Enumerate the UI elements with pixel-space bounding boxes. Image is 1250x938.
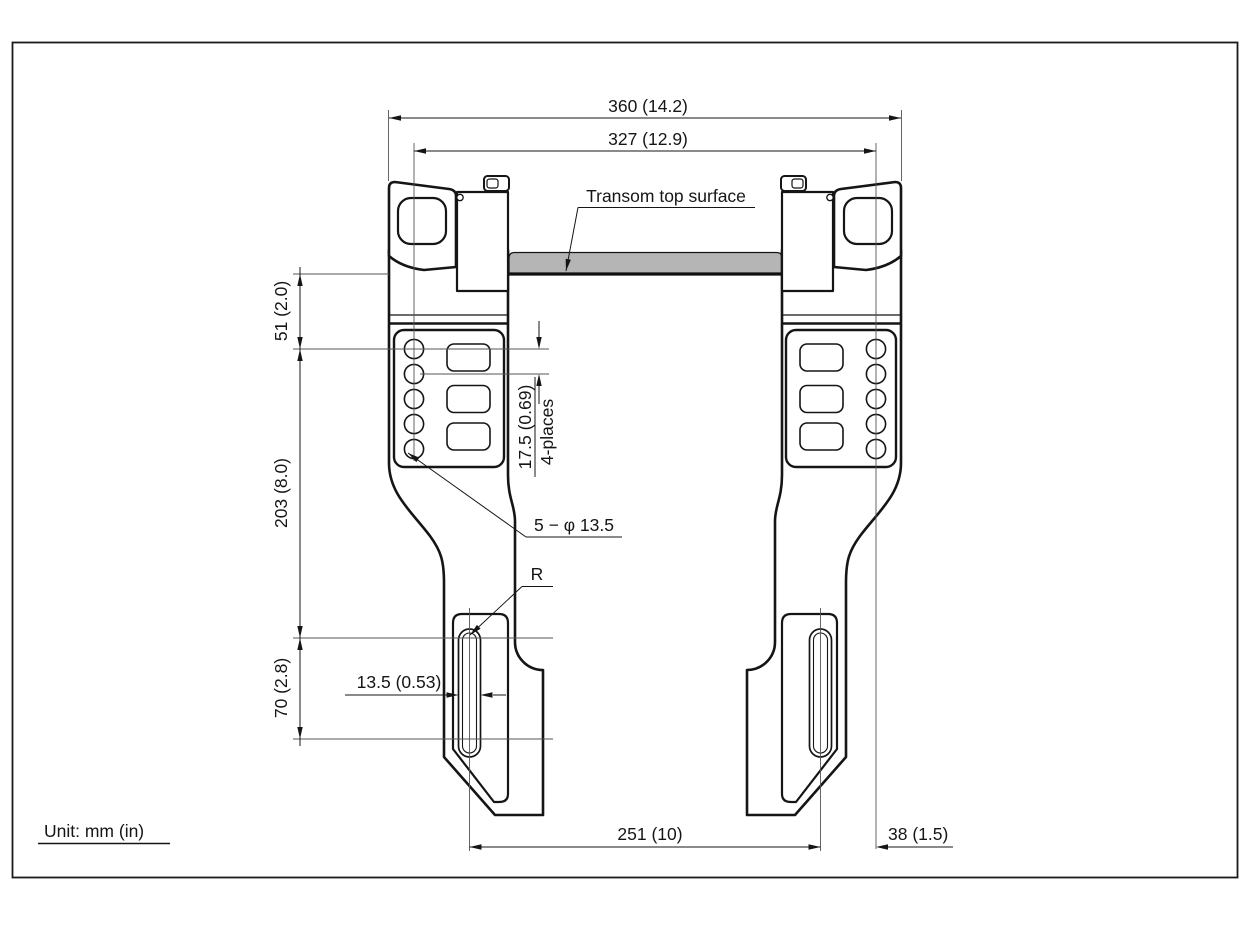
hole-callout: 5 − φ 13.5 [534, 515, 614, 535]
dim-transom-to-first-hole: 51 (2.0) [271, 281, 291, 341]
transom-bracket-technical-drawing: 360 (14.2) 327 (12.9) Transom top surfac… [0, 0, 1250, 938]
radius-callout: R [531, 564, 544, 584]
dim-foot-slot-span: 251 (10) [617, 824, 682, 844]
dim-slot-length: 70 (2.8) [271, 658, 291, 718]
transom-top-surface-shape [506, 253, 785, 275]
wall-notch [457, 194, 463, 200]
drawing-page: 360 (14.2) 327 (12.9) Transom top surfac… [0, 0, 1250, 938]
dim-overall-width: 360 (14.2) [608, 96, 688, 116]
dim-bracket-drop: 203 (8.0) [271, 458, 291, 528]
hole-pitch-places: 4-places [537, 399, 557, 465]
clamp-screw-pad [398, 198, 446, 244]
dim-hole-pitch: 17.5 (0.69) [515, 385, 535, 470]
clamp-tab-inner [487, 179, 498, 188]
dim-foot-to-hole-line: 38 (1.5) [888, 824, 948, 844]
clamp-wall [457, 192, 508, 291]
unit-note: Unit: mm (in) [44, 821, 144, 841]
dim-slot-width: 13.5 (0.53) [357, 672, 442, 692]
dim-mount-hole-span: 327 (12.9) [608, 129, 688, 149]
drawing-border [13, 43, 1238, 878]
transom-surface-label: Transom top surface [586, 186, 746, 206]
